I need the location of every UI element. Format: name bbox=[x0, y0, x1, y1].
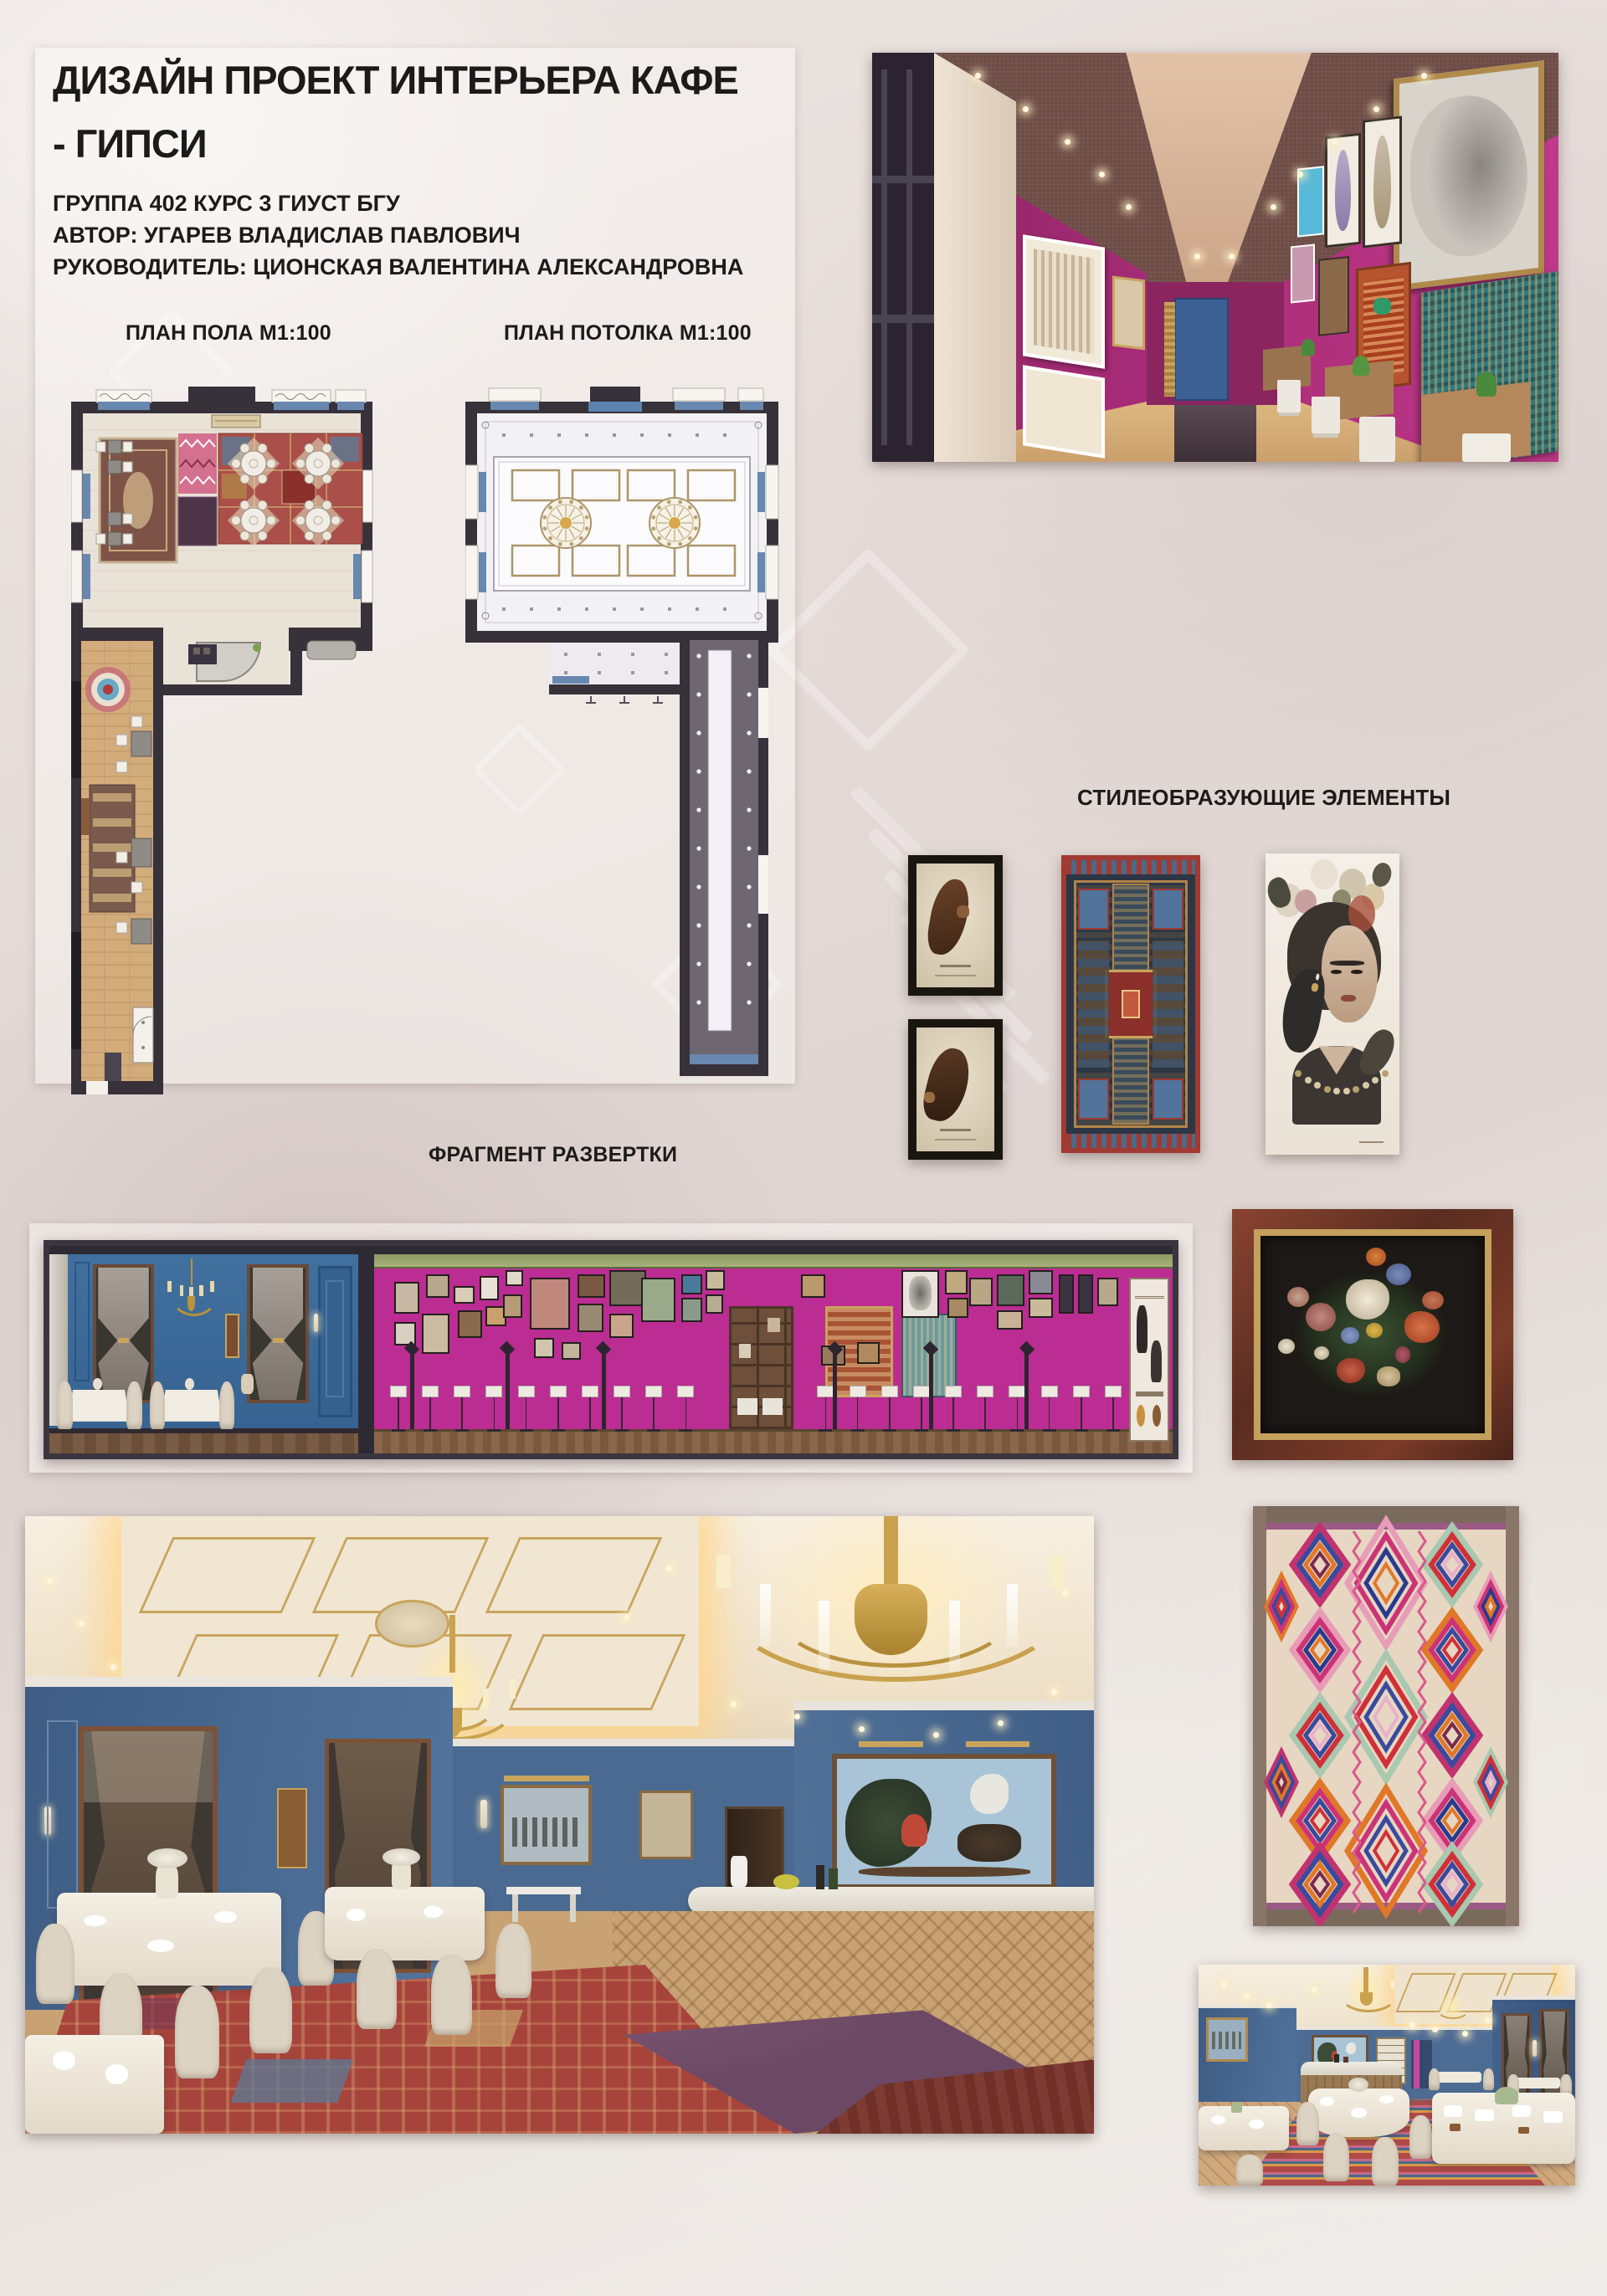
decor bbox=[747, 692, 751, 696]
curtain bbox=[253, 1268, 304, 1401]
elevation-drawing bbox=[44, 1240, 1178, 1459]
decor bbox=[331, 516, 341, 525]
dining-table bbox=[1432, 2093, 1575, 2163]
floor-lamp bbox=[929, 1350, 933, 1429]
picture-frame bbox=[578, 1274, 604, 1299]
decor bbox=[579, 536, 583, 541]
floor-lamp bbox=[410, 1350, 414, 1429]
decor bbox=[696, 1000, 701, 1004]
wall-clock bbox=[277, 1788, 307, 1868]
decor bbox=[688, 505, 692, 510]
decor bbox=[747, 961, 751, 966]
decor bbox=[747, 730, 751, 735]
picture-frame bbox=[1097, 1278, 1118, 1305]
picture-frame bbox=[562, 1342, 581, 1360]
decor bbox=[585, 526, 589, 530]
downlight bbox=[859, 1726, 865, 1732]
downlight bbox=[1051, 1689, 1057, 1695]
dining-table bbox=[68, 1390, 130, 1422]
decor bbox=[542, 515, 547, 520]
elevation-magenta-section bbox=[374, 1254, 1173, 1453]
frida-print bbox=[1266, 853, 1399, 1155]
downlight bbox=[1062, 1591, 1068, 1596]
stool bbox=[1277, 380, 1301, 413]
decor bbox=[696, 846, 701, 850]
stool bbox=[1462, 433, 1510, 462]
decor bbox=[696, 607, 699, 611]
leaf bbox=[1356, 1025, 1399, 1080]
corridor-runner bbox=[1174, 405, 1256, 462]
corridor-render bbox=[872, 53, 1558, 462]
feather-print bbox=[1325, 133, 1361, 249]
horse-photo bbox=[1410, 88, 1527, 263]
picture-frame bbox=[857, 1342, 880, 1364]
picture-frame bbox=[503, 1294, 522, 1319]
decor bbox=[696, 923, 701, 927]
picture-frame bbox=[1029, 1270, 1053, 1294]
picture-frame bbox=[947, 1298, 968, 1318]
ceiling-plan-label: ПЛАН ПОТОЛКА М1:100 bbox=[504, 321, 752, 346]
downlight bbox=[1432, 2027, 1438, 2032]
bar-stool bbox=[582, 1386, 598, 1432]
decor bbox=[657, 536, 661, 541]
decor bbox=[530, 607, 533, 611]
bottle bbox=[1343, 2057, 1348, 2063]
bottle bbox=[1334, 2054, 1339, 2063]
dining-table bbox=[1199, 2106, 1289, 2150]
picture-frame bbox=[706, 1270, 725, 1290]
flower bbox=[1404, 1311, 1440, 1343]
bar-stool bbox=[518, 1386, 535, 1432]
decor bbox=[322, 500, 331, 510]
decor bbox=[694, 526, 698, 530]
floor-lamp-top bbox=[500, 1341, 516, 1357]
bar-stool bbox=[550, 1386, 567, 1432]
decor bbox=[640, 433, 644, 437]
flower bbox=[1311, 859, 1337, 889]
decor bbox=[258, 443, 267, 453]
picture-frame bbox=[706, 1294, 723, 1315]
decor bbox=[696, 653, 701, 658]
plant bbox=[1302, 339, 1315, 356]
picture-frame bbox=[1029, 1298, 1053, 1318]
shelving-unit bbox=[729, 1306, 793, 1430]
decor bbox=[747, 653, 751, 658]
downlight bbox=[1373, 106, 1379, 112]
bar-stool bbox=[850, 1386, 866, 1432]
bar-stool bbox=[913, 1386, 930, 1432]
decor bbox=[696, 807, 701, 812]
picture-frame bbox=[1078, 1274, 1092, 1315]
downlight bbox=[998, 1720, 1004, 1726]
decor bbox=[258, 474, 267, 484]
decor bbox=[560, 517, 572, 529]
dining-table bbox=[325, 1887, 485, 1961]
horse-painting-1 bbox=[908, 855, 1003, 996]
plan-table bbox=[241, 508, 266, 533]
decor bbox=[688, 536, 692, 541]
decor bbox=[557, 433, 561, 437]
bar-stool bbox=[1009, 1386, 1025, 1432]
wainscot bbox=[374, 1429, 1173, 1453]
decor bbox=[585, 607, 588, 611]
downlight bbox=[1023, 106, 1029, 112]
decor bbox=[585, 515, 589, 520]
decor bbox=[667, 500, 671, 504]
plant bbox=[1476, 372, 1497, 396]
downlight bbox=[1065, 139, 1070, 145]
page-title-line1: ДИЗАЙН ПРОЕКТ ИНТЕРЬЕРА КАФЕ bbox=[53, 49, 743, 112]
horse-photo-frame bbox=[1394, 59, 1544, 290]
feather-print bbox=[1363, 116, 1402, 249]
decor bbox=[696, 769, 701, 773]
downlight bbox=[47, 1578, 53, 1584]
horse-picture bbox=[909, 1276, 932, 1309]
picture-frame bbox=[969, 1278, 993, 1305]
bar-stool bbox=[390, 1386, 407, 1432]
carpet-medallion bbox=[1105, 970, 1157, 1039]
small-render bbox=[1199, 1965, 1575, 2186]
bar-stool bbox=[485, 1386, 502, 1432]
painting bbox=[1206, 2017, 1248, 2062]
chandelier bbox=[1432, 1991, 1470, 2022]
curtain bbox=[98, 1268, 149, 1401]
decor bbox=[322, 443, 331, 453]
decor bbox=[548, 536, 552, 541]
white-cabinet bbox=[1129, 1278, 1169, 1441]
decor bbox=[747, 769, 751, 773]
bar-stool bbox=[945, 1386, 962, 1432]
picture-frame bbox=[506, 1270, 523, 1286]
decor bbox=[305, 443, 314, 453]
title-block: ДИЗАЙН ПРОЕКТ ИНТЕРЬЕРА КАФЕ - ГИПСИ ГРУ… bbox=[53, 49, 743, 283]
window bbox=[247, 1264, 309, 1404]
dining-table bbox=[57, 1893, 281, 1986]
downlight bbox=[1099, 172, 1105, 177]
table bbox=[1436, 2072, 1481, 2083]
vase bbox=[731, 1856, 747, 1887]
bar-stool bbox=[1105, 1386, 1122, 1432]
corridor-end-door bbox=[1174, 298, 1230, 400]
small-art bbox=[1291, 243, 1315, 303]
picture-frame bbox=[394, 1282, 420, 1314]
bar-stool bbox=[1041, 1386, 1058, 1432]
necklace-bead bbox=[1382, 1070, 1389, 1077]
plan-banquette bbox=[307, 641, 356, 659]
horse-figurine bbox=[1373, 298, 1391, 315]
bar-stool bbox=[977, 1386, 993, 1432]
floor-lamp-top bbox=[596, 1341, 612, 1357]
poster-frame bbox=[1023, 234, 1105, 368]
bar-counter-top bbox=[688, 1887, 1094, 1914]
picture-frame bbox=[422, 1314, 449, 1354]
decor bbox=[232, 459, 241, 469]
decor bbox=[651, 515, 655, 520]
decor bbox=[267, 459, 276, 469]
picture-frame bbox=[945, 1270, 968, 1294]
decor bbox=[696, 433, 699, 437]
downlight bbox=[1194, 254, 1200, 259]
decor bbox=[569, 542, 573, 546]
bird bbox=[1277, 966, 1329, 1055]
elevation-label: ФРАГМЕНТ РАЗВЕРТКИ bbox=[429, 1143, 677, 1167]
decor bbox=[232, 516, 241, 525]
bottle bbox=[816, 1865, 824, 1890]
decor bbox=[258, 500, 267, 510]
decor bbox=[613, 607, 616, 611]
picture-frame bbox=[681, 1298, 702, 1322]
decor bbox=[558, 542, 562, 546]
decor bbox=[696, 884, 701, 889]
picture-frame bbox=[801, 1274, 825, 1299]
horse-painting-2 bbox=[908, 1019, 1003, 1160]
necklace-bead bbox=[1372, 1077, 1379, 1084]
decor bbox=[542, 526, 547, 530]
bar-stool bbox=[614, 1386, 630, 1432]
bar-stool bbox=[454, 1386, 470, 1432]
decor bbox=[322, 474, 331, 484]
necklace-bead bbox=[1305, 1077, 1312, 1084]
decor bbox=[723, 607, 726, 611]
bar-stool bbox=[422, 1386, 439, 1432]
elevation-blue-section bbox=[49, 1254, 358, 1453]
decor bbox=[267, 516, 276, 525]
decor bbox=[667, 542, 671, 546]
decor bbox=[502, 607, 506, 611]
plant bbox=[1353, 356, 1369, 376]
window bbox=[93, 1264, 155, 1404]
picture-frame bbox=[426, 1274, 450, 1299]
picture-frame bbox=[1059, 1274, 1073, 1315]
picture-frame bbox=[454, 1286, 475, 1304]
downlight bbox=[1271, 204, 1276, 210]
decor bbox=[747, 923, 751, 927]
floor-lamp bbox=[602, 1350, 606, 1429]
picture-frame bbox=[530, 1278, 570, 1330]
decor bbox=[322, 531, 331, 541]
brow bbox=[1330, 961, 1365, 966]
face bbox=[1322, 925, 1378, 1022]
blue-door bbox=[318, 1266, 352, 1417]
floor-plan-label: ПЛАН ПОЛА М1:100 bbox=[126, 321, 331, 346]
dining-table bbox=[25, 2035, 164, 2134]
decor bbox=[747, 1000, 751, 1004]
picture-frame bbox=[578, 1304, 603, 1331]
console-vase bbox=[241, 1374, 254, 1394]
decor bbox=[613, 433, 616, 437]
floor-lamp bbox=[506, 1350, 510, 1429]
plan-table bbox=[241, 451, 266, 476]
decor bbox=[240, 500, 249, 510]
decor bbox=[694, 515, 698, 520]
decor bbox=[558, 500, 562, 504]
decor bbox=[640, 607, 644, 611]
downlight bbox=[1266, 2002, 1272, 2008]
horse-head bbox=[919, 1043, 975, 1125]
decor bbox=[331, 459, 341, 469]
dining-table bbox=[1308, 2088, 1410, 2137]
boucherouite-rug bbox=[1253, 1506, 1519, 1926]
decor bbox=[668, 607, 671, 611]
decor bbox=[668, 433, 671, 437]
lips bbox=[1341, 995, 1355, 1002]
necklace-bead bbox=[1363, 1082, 1369, 1089]
bird-painting bbox=[832, 1754, 1056, 1889]
picture-frame bbox=[458, 1310, 482, 1338]
window-mullions bbox=[872, 53, 934, 462]
decor bbox=[502, 433, 506, 437]
flower-canvas bbox=[1254, 1229, 1491, 1440]
floor-plan-drawing bbox=[71, 387, 374, 1094]
small-art bbox=[1318, 256, 1349, 336]
decor bbox=[696, 730, 701, 735]
floor-lamp bbox=[1024, 1350, 1029, 1429]
bar-stool bbox=[817, 1386, 834, 1432]
picture-frame bbox=[681, 1274, 702, 1294]
plan-entry-wall bbox=[188, 387, 255, 402]
cream-wall bbox=[934, 53, 1016, 462]
picture-frame bbox=[480, 1276, 499, 1300]
poster-frame bbox=[1023, 366, 1105, 459]
painting-horses bbox=[501, 1785, 592, 1865]
plan-table bbox=[305, 451, 331, 476]
decor bbox=[579, 505, 583, 510]
project-group: ГРУППА 402 КУРС 3 ГИУСТ БГУ bbox=[53, 187, 743, 219]
decor bbox=[548, 505, 552, 510]
decor bbox=[747, 807, 751, 812]
decor bbox=[669, 517, 680, 529]
bottle bbox=[829, 1868, 837, 1890]
flower-painting bbox=[1232, 1209, 1513, 1460]
decor bbox=[240, 531, 249, 541]
decor bbox=[696, 692, 701, 696]
decor bbox=[585, 433, 588, 437]
poster-canvas: { "title": { "line1": "ДИЗАЙН ПРОЕКТ ИНТ… bbox=[0, 0, 1607, 2296]
fruit-bowl bbox=[773, 1874, 799, 1889]
plan-table bbox=[305, 508, 331, 533]
flower bbox=[1386, 1263, 1411, 1285]
chandelier-large bbox=[709, 1516, 1072, 1701]
watermark-square bbox=[765, 547, 971, 753]
decor bbox=[747, 884, 751, 889]
dining-table bbox=[161, 1390, 223, 1422]
chandelier bbox=[1334, 1965, 1399, 2017]
wood-floor bbox=[49, 1433, 358, 1453]
bar-stool bbox=[1073, 1386, 1090, 1432]
wall-clock bbox=[225, 1314, 239, 1357]
downlight bbox=[1409, 2022, 1415, 2028]
decor bbox=[657, 505, 661, 510]
decor bbox=[557, 607, 561, 611]
decor bbox=[678, 542, 682, 546]
decor bbox=[240, 443, 249, 453]
style-carpet bbox=[1061, 855, 1200, 1153]
picture-frame bbox=[534, 1338, 555, 1358]
picture-frame bbox=[641, 1278, 675, 1321]
floor-lamp-top bbox=[1019, 1341, 1035, 1357]
floor-lamp bbox=[833, 1350, 837, 1429]
picture-frame bbox=[997, 1274, 1024, 1306]
decor bbox=[305, 500, 314, 510]
project-author: АВТОР: УГАРЕВ ВЛАДИСЛАВ ПАВЛОВИЧ bbox=[53, 219, 743, 251]
picture-frame bbox=[609, 1314, 634, 1338]
page-title-line2: - ГИПСИ bbox=[53, 112, 743, 176]
main-render bbox=[25, 1516, 1094, 2134]
decor bbox=[651, 526, 655, 530]
corridor-light-strip bbox=[708, 650, 732, 1031]
plan-carpet-dark bbox=[178, 497, 217, 546]
decor bbox=[747, 846, 751, 850]
downlight bbox=[1229, 254, 1235, 259]
bar-counter-top bbox=[1301, 2062, 1403, 2075]
decor bbox=[305, 531, 314, 541]
small-frame bbox=[1112, 276, 1145, 351]
decor bbox=[569, 500, 573, 504]
decor bbox=[723, 433, 726, 437]
bar-stool bbox=[645, 1386, 662, 1432]
decor bbox=[678, 500, 682, 504]
ceiling-plan-drawing bbox=[465, 387, 782, 1094]
decor bbox=[696, 961, 701, 966]
gold-curtain bbox=[1164, 302, 1175, 396]
style-elements-label: СТИЛЕОБРАЗУЮЩИЕ ЭЛЕМЕНТЫ bbox=[1077, 785, 1450, 811]
decor bbox=[296, 516, 305, 525]
flower bbox=[1306, 1303, 1336, 1331]
table bbox=[1515, 2078, 1560, 2088]
project-supervisor: РУКОВОДИТЕЛЬ: ЦИОНСКАЯ ВАЛЕНТИНА АЛЕКСАН… bbox=[53, 251, 743, 283]
chandelier bbox=[167, 1258, 216, 1326]
stool bbox=[1359, 417, 1395, 462]
decor bbox=[240, 474, 249, 484]
picture-frame bbox=[997, 1310, 1023, 1330]
plan-reception bbox=[133, 1007, 153, 1063]
cornice bbox=[374, 1254, 1173, 1268]
decor bbox=[296, 459, 305, 469]
decor bbox=[305, 474, 314, 484]
stool bbox=[1312, 397, 1340, 433]
necklace-bead bbox=[1324, 1086, 1331, 1093]
decor bbox=[530, 433, 533, 437]
bar-stool bbox=[881, 1386, 898, 1432]
bar-stool bbox=[677, 1386, 694, 1432]
decor bbox=[258, 531, 267, 541]
painting-small bbox=[639, 1791, 693, 1858]
